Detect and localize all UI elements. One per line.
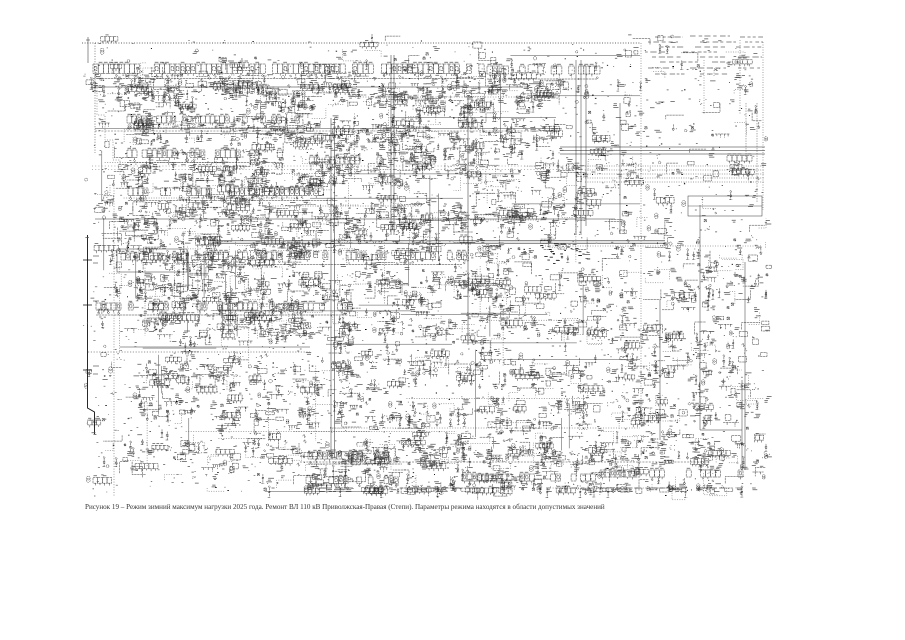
svg-text:Рисунок 19 – Режим зимний макс: Рисунок 19 – Режим зимний максимум нагру… xyxy=(85,503,605,511)
